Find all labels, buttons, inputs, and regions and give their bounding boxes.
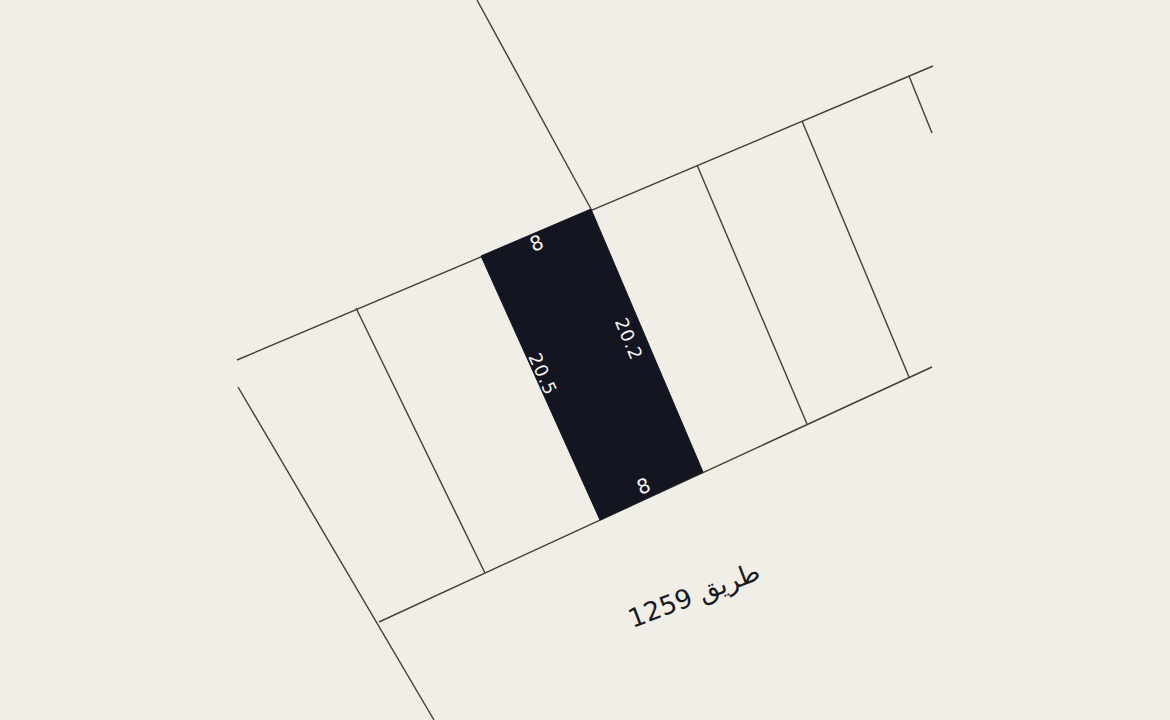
boundary-line-top-road: [477, 0, 591, 209]
road-name-label: طريق 1259: [624, 556, 764, 635]
parcel-divider-4-short: [909, 76, 932, 133]
cadastral-parcel-map: 8 20.2 20.5 8 طريق 1259: [0, 0, 1170, 720]
parcel-divider-2: [697, 165, 807, 424]
map-viewport[interactable]: 8 20.2 20.5 8 طريق 1259: [0, 0, 1170, 720]
parcel-divider-1: [356, 308, 485, 573]
selected-parcel[interactable]: [481, 209, 703, 520]
parcel-divider-3: [802, 121, 909, 377]
boundary-line-left: [238, 387, 434, 720]
